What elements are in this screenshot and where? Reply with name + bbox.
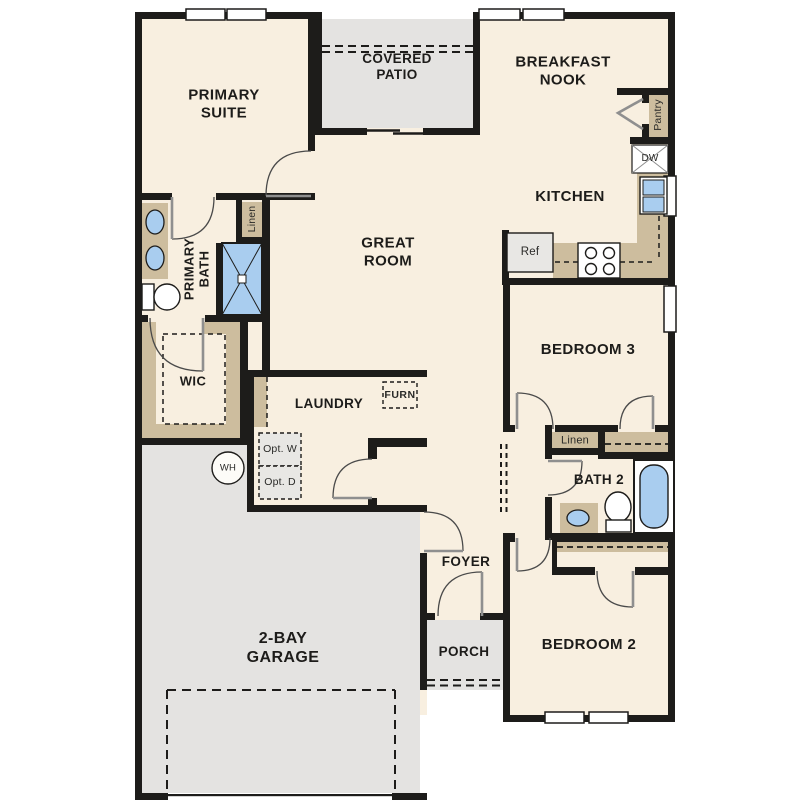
primary-linen-closet	[242, 202, 262, 237]
kitchen-sink-basin-2	[643, 197, 664, 212]
floor-plan: PRIMARY SUITE COVERED PATIO BREAKFAST NO…	[0, 0, 810, 810]
bath2-sink	[567, 510, 589, 526]
water-heater-circle	[212, 452, 244, 484]
window-breakfast-nook-2	[523, 9, 564, 20]
bath2-toilet-bowl	[605, 492, 631, 522]
window-primary-suite-1	[186, 9, 225, 20]
garage-door-line	[168, 794, 392, 796]
window-primary-suite-2	[227, 9, 266, 20]
bath2-toilet-tank	[606, 520, 631, 532]
primary-sink-2	[146, 246, 164, 270]
window-bedroom3	[664, 286, 676, 332]
bedroom3-closet-shelf	[605, 432, 668, 452]
exterior-patch	[427, 690, 503, 716]
opt-dryer-box	[259, 466, 301, 499]
bath2-tub	[640, 465, 668, 528]
opt-washer-box	[259, 433, 301, 466]
primary-toilet-tank	[142, 284, 154, 310]
window-bedroom2-1	[545, 712, 584, 723]
porch-floor	[427, 620, 503, 690]
wic-shelving-left	[142, 322, 156, 438]
floor-plan-drawing	[0, 0, 810, 810]
wic-shelving-bottom	[142, 424, 240, 438]
wic-shelving-top	[202, 322, 240, 334]
shower-drain	[238, 275, 246, 283]
window-bedroom2-2	[589, 712, 628, 723]
wic-shelving-right	[226, 322, 240, 438]
pantry-floor	[649, 95, 668, 137]
hall-linen-closet	[552, 432, 598, 450]
laundry-cabinet	[254, 377, 267, 427]
window-breakfast-nook-1	[479, 9, 520, 20]
primary-sink-1	[146, 210, 164, 234]
kitchen-sink-basin-1	[643, 180, 664, 195]
covered-patio-floor	[322, 19, 473, 128]
refrigerator-box	[507, 233, 553, 272]
primary-toilet-bowl	[154, 284, 180, 310]
